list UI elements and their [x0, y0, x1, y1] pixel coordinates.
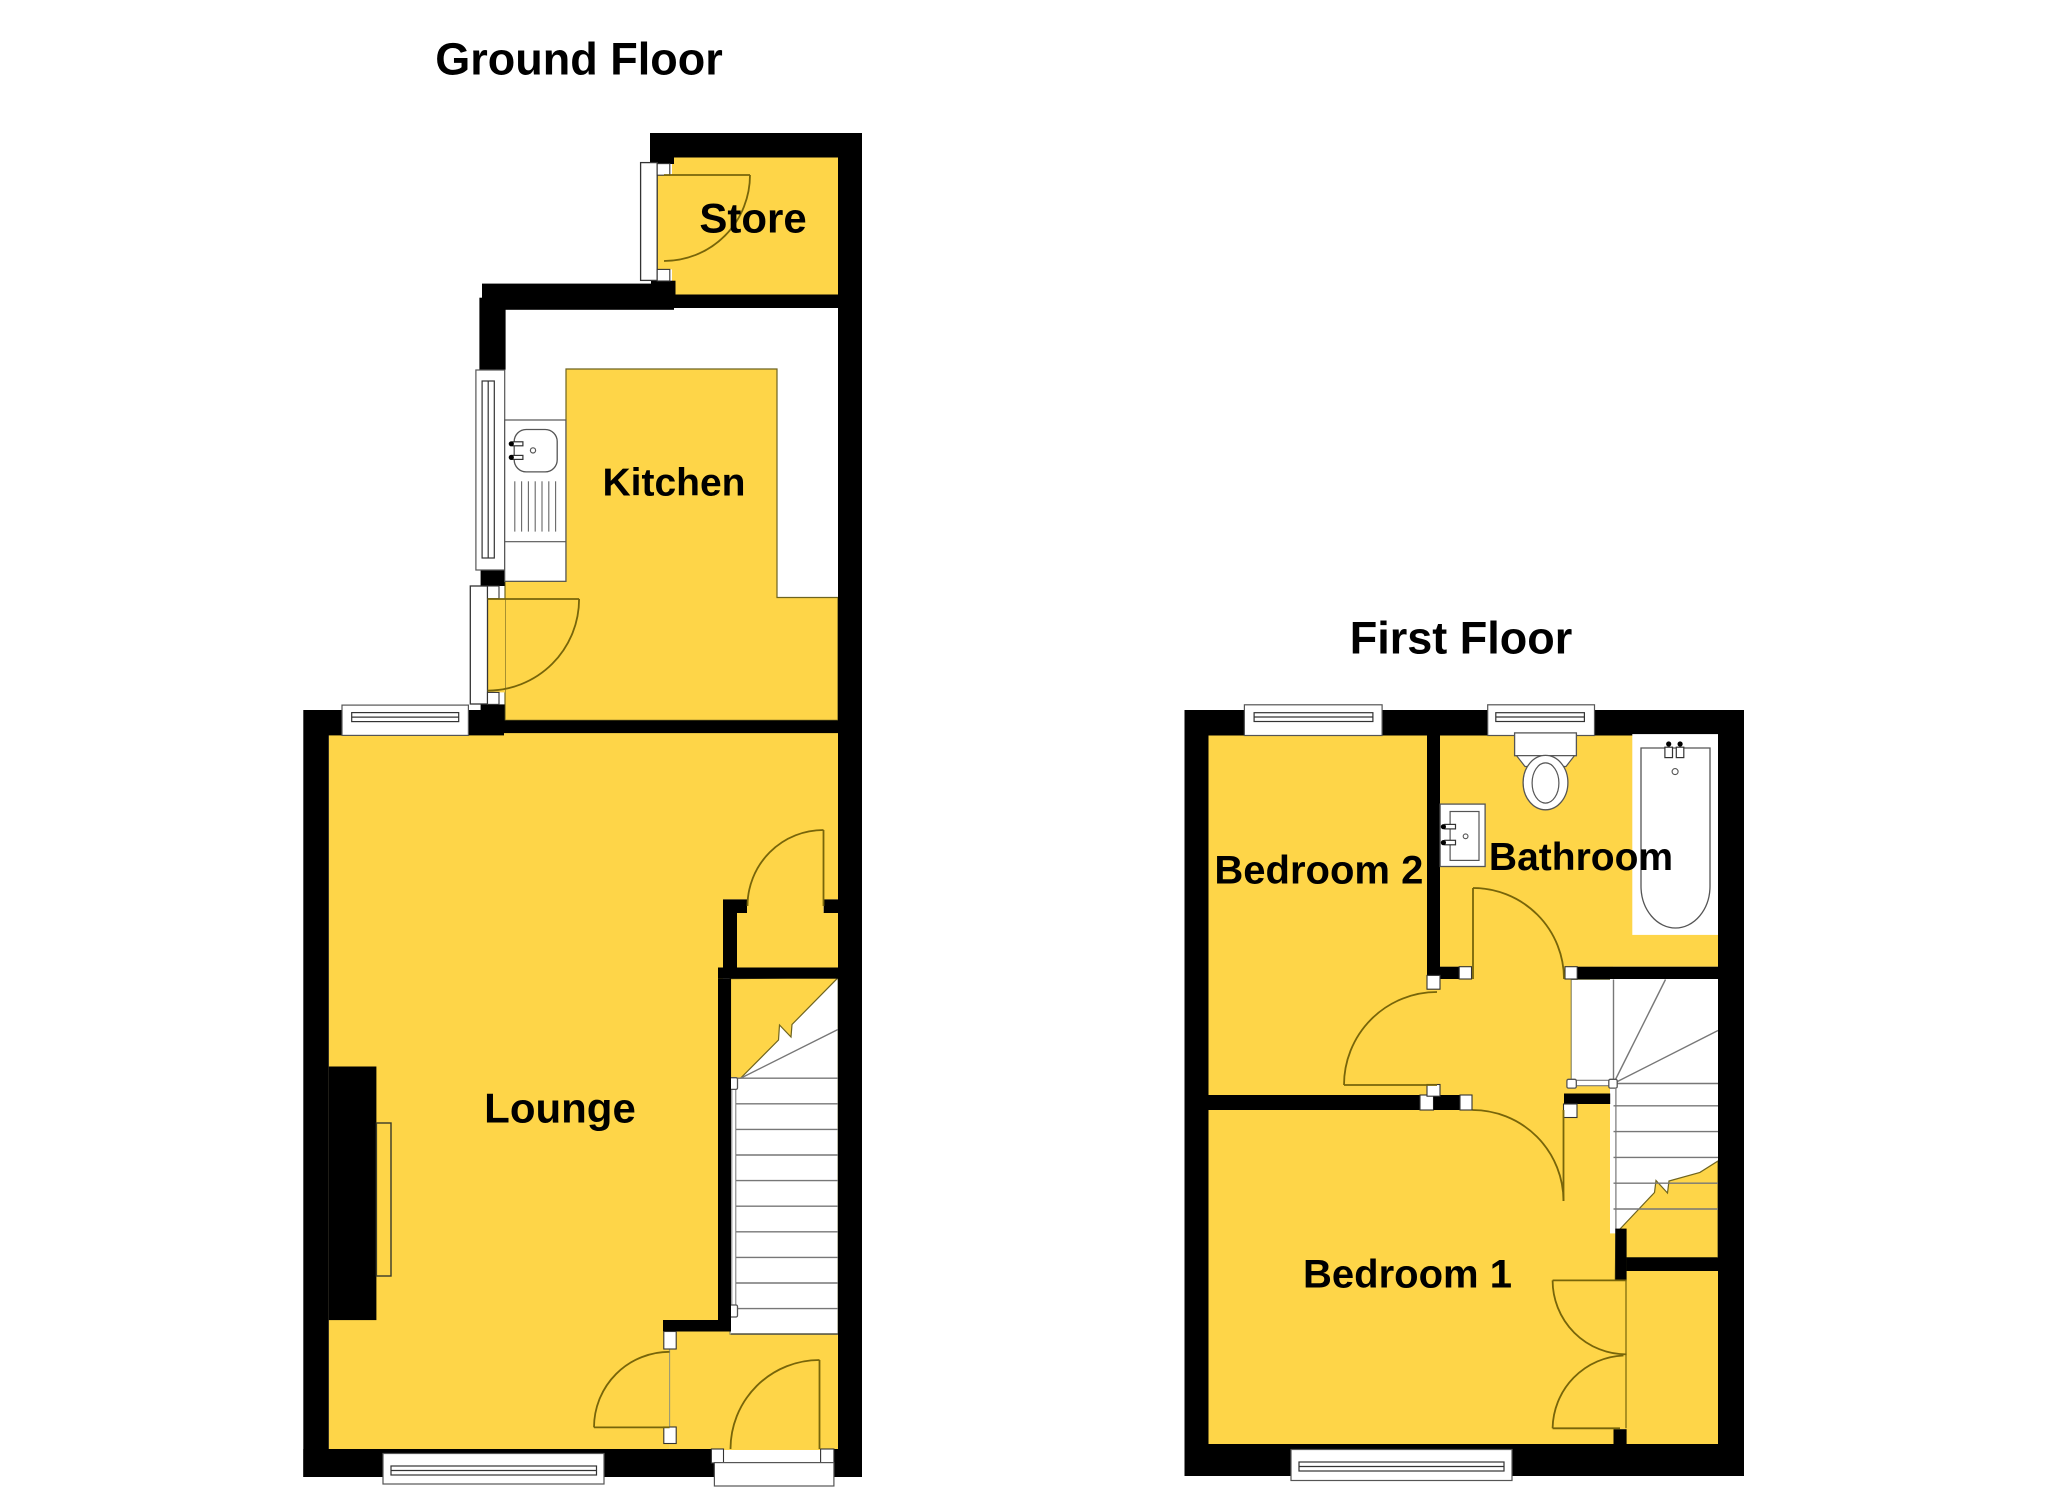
svg-text:Store: Store: [699, 195, 806, 242]
svg-text:First Floor: First Floor: [1350, 612, 1573, 663]
svg-text:Kitchen: Kitchen: [602, 462, 745, 505]
svg-text:Bedroom 1: Bedroom 1: [1303, 1252, 1512, 1296]
svg-text:Lounge: Lounge: [484, 1084, 636, 1131]
svg-text:Ground Floor: Ground Floor: [435, 34, 722, 85]
svg-text:Bedroom 2: Bedroom 2: [1214, 849, 1423, 893]
svg-text:Bathroom: Bathroom: [1489, 836, 1673, 879]
